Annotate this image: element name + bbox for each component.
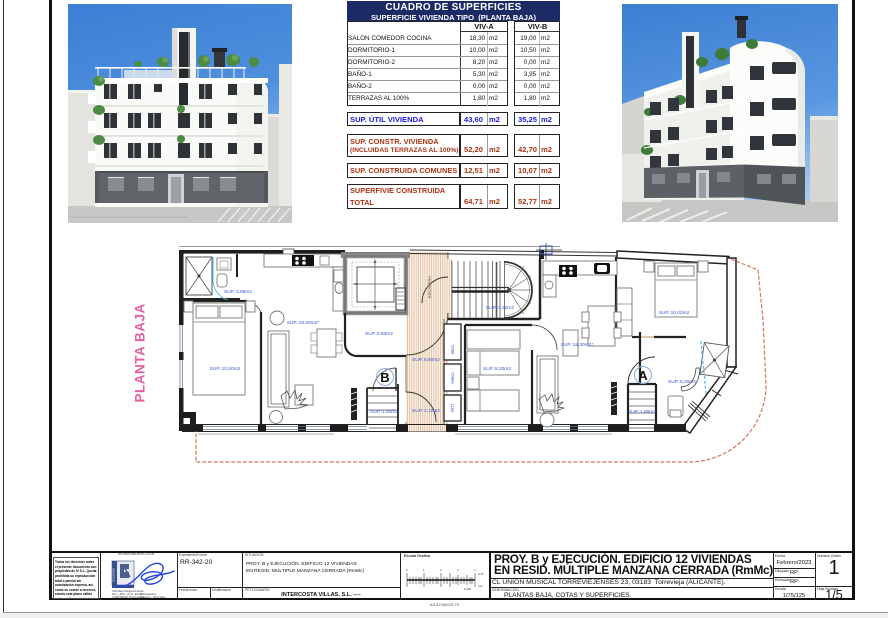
svg-text:SUP.:3,95m2: SUP.:3,95m2 bbox=[224, 289, 252, 295]
svg-text:SUP.:4,30m2: SUP.:4,30m2 bbox=[486, 305, 514, 311]
svg-text:SUP.:10,50m2: SUP.:10,50m2 bbox=[210, 366, 241, 372]
svg-text:SUP.:5,30m2: SUP.:5,30m2 bbox=[668, 379, 696, 385]
svg-text:Creación - Torre-Viejo: Creación - Torre-Viejo bbox=[140, 595, 166, 599]
svg-text:4: 4 bbox=[474, 568, 476, 572]
svg-text:0: 0 bbox=[406, 568, 408, 572]
svg-text:SUP.:19,00m2*: SUP.:19,00m2* bbox=[287, 320, 320, 326]
svg-text:1/75: 1/75 bbox=[478, 572, 484, 576]
svg-text:mts: mts bbox=[478, 584, 483, 588]
svg-text:elect.: elect. bbox=[450, 344, 455, 354]
svg-text:SUP.:6,60m2: SUP.:6,60m2 bbox=[412, 357, 440, 363]
svg-text:SUP.:1,80m2: SUP.:1,80m2 bbox=[370, 409, 398, 415]
svg-text:SUP.:8,20m2: SUP.:8,20m2 bbox=[483, 366, 511, 372]
svg-text:A: A bbox=[638, 368, 648, 383]
svg-text:RITI: RITI bbox=[450, 404, 455, 412]
svg-text:2: 2 bbox=[440, 568, 442, 572]
svg-text:3: 3 bbox=[457, 568, 459, 572]
svg-text:ESCALERA: ESCALERA bbox=[427, 276, 432, 299]
svg-text:SUP.:10,00m2: SUP.:10,00m2 bbox=[659, 310, 690, 316]
svg-text:SUP.:2,60m2: SUP.:2,60m2 bbox=[365, 331, 393, 337]
svg-text:1/125: 1/125 bbox=[464, 587, 471, 591]
svg-text:B: B bbox=[380, 370, 389, 385]
svg-text:SUP.:1,80m2: SUP.:1,80m2 bbox=[628, 409, 656, 415]
svg-text:1: 1 bbox=[423, 568, 425, 572]
svg-text:teleco: teleco bbox=[450, 372, 455, 384]
svg-text:SUP.:2,10m2: SUP.:2,10m2 bbox=[412, 408, 440, 414]
svg-text:SUP.:18,30m2*: SUP.:18,30m2* bbox=[561, 342, 594, 348]
svg-text:COLEGIO: COLEGIO bbox=[112, 567, 116, 581]
